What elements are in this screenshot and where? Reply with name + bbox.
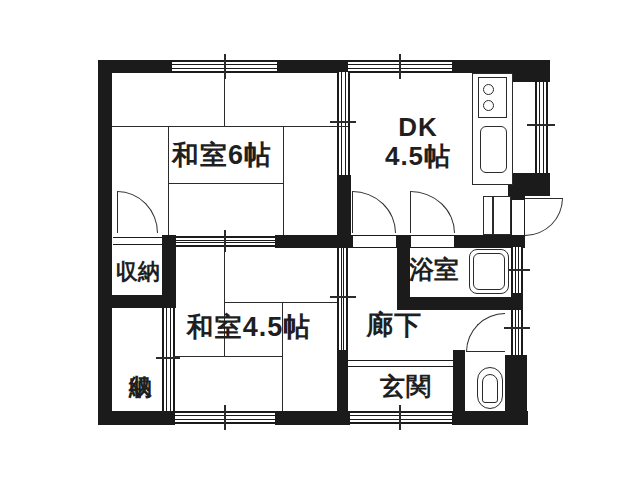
toilet-seat	[482, 374, 498, 403]
wall	[511, 292, 523, 310]
window-tick	[224, 230, 226, 252]
wall	[453, 350, 465, 420]
tatami-line	[168, 126, 169, 235]
tatami-line	[225, 302, 337, 303]
room-label-bathroom: 浴室	[409, 256, 459, 284]
back-door-arc	[525, 198, 563, 236]
tatami-line	[283, 126, 284, 235]
window-tick	[330, 121, 356, 123]
tatami-line	[112, 126, 348, 127]
wall	[337, 350, 348, 412]
room-label-dk-line1: DK	[385, 113, 451, 142]
stove-burner-icon	[483, 84, 494, 95]
entrance-step	[348, 360, 453, 367]
window-tick	[224, 54, 226, 79]
room-label-dk: DK 4.5帖	[385, 113, 451, 170]
wall	[452, 60, 510, 73]
tatami-line	[224, 73, 225, 127]
room-label-washitsu45: 和室4.5帖	[187, 313, 312, 343]
room-label-washitsu6: 和室6帖	[172, 141, 272, 171]
window-tick	[504, 327, 530, 329]
back-door-step-line	[492, 196, 494, 235]
wall	[98, 295, 176, 308]
entrance-sliding-door	[350, 411, 452, 424]
back-door-step	[483, 196, 511, 235]
wall	[508, 173, 550, 196]
window-tick	[156, 357, 180, 359]
door-arc	[352, 191, 396, 233]
wall	[397, 297, 523, 310]
wall	[98, 411, 175, 425]
floor-plan: 和室6帖 DK 4.5帖 和室4.5帖 収納 収納 廊下 浴室 玄関	[0, 0, 640, 480]
tatami-line	[168, 183, 283, 184]
wall	[508, 60, 550, 82]
doorway	[410, 235, 455, 248]
sliding-door	[176, 236, 275, 247]
back-doorway	[511, 200, 525, 235]
door-arc	[410, 191, 455, 233]
sliding-door	[337, 248, 348, 350]
wall	[275, 235, 352, 248]
window	[511, 310, 523, 355]
room-label-corridor: 廊下	[366, 311, 422, 341]
window-tick	[527, 124, 555, 126]
bathtub-inner	[473, 253, 505, 290]
sliding-door	[337, 72, 350, 175]
window-tick	[399, 405, 401, 430]
wall	[98, 60, 112, 425]
closet-sliding-door	[162, 308, 175, 411]
closet-door-arc	[117, 191, 158, 233]
room-label-entrance: 玄関	[380, 373, 432, 401]
wall	[337, 175, 351, 235]
doorway	[352, 235, 397, 248]
toilet-door-arc	[466, 313, 505, 352]
window-tick	[399, 54, 401, 79]
wall	[275, 411, 350, 425]
window	[535, 82, 548, 173]
room-label-storage-lower: 収納	[127, 356, 152, 360]
wall	[505, 355, 527, 420]
window-tick	[224, 405, 226, 430]
room-label-storage-upper: 収納	[116, 260, 160, 284]
stove-burner-icon	[483, 100, 494, 111]
kitchen-sink	[480, 126, 507, 173]
closet-opening	[113, 237, 162, 245]
window-tick	[330, 296, 356, 298]
room-label-dk-line2: 4.5帖	[385, 142, 451, 171]
stove	[478, 77, 507, 118]
tatami-line	[173, 356, 283, 357]
